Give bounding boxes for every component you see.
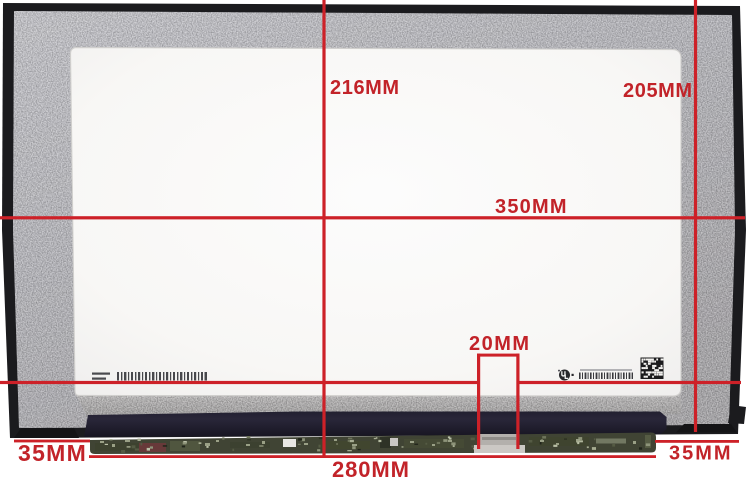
- svg-text:350MM: 350MM: [495, 196, 568, 218]
- svg-text:35MM: 35MM: [669, 443, 733, 465]
- svg-text:205MM: 205MM: [623, 80, 693, 102]
- svg-text:20MM: 20MM: [469, 333, 531, 355]
- svg-text:216MM: 216MM: [330, 77, 400, 99]
- svg-text:280MM: 280MM: [332, 457, 410, 478]
- svg-text:35MM: 35MM: [18, 440, 87, 466]
